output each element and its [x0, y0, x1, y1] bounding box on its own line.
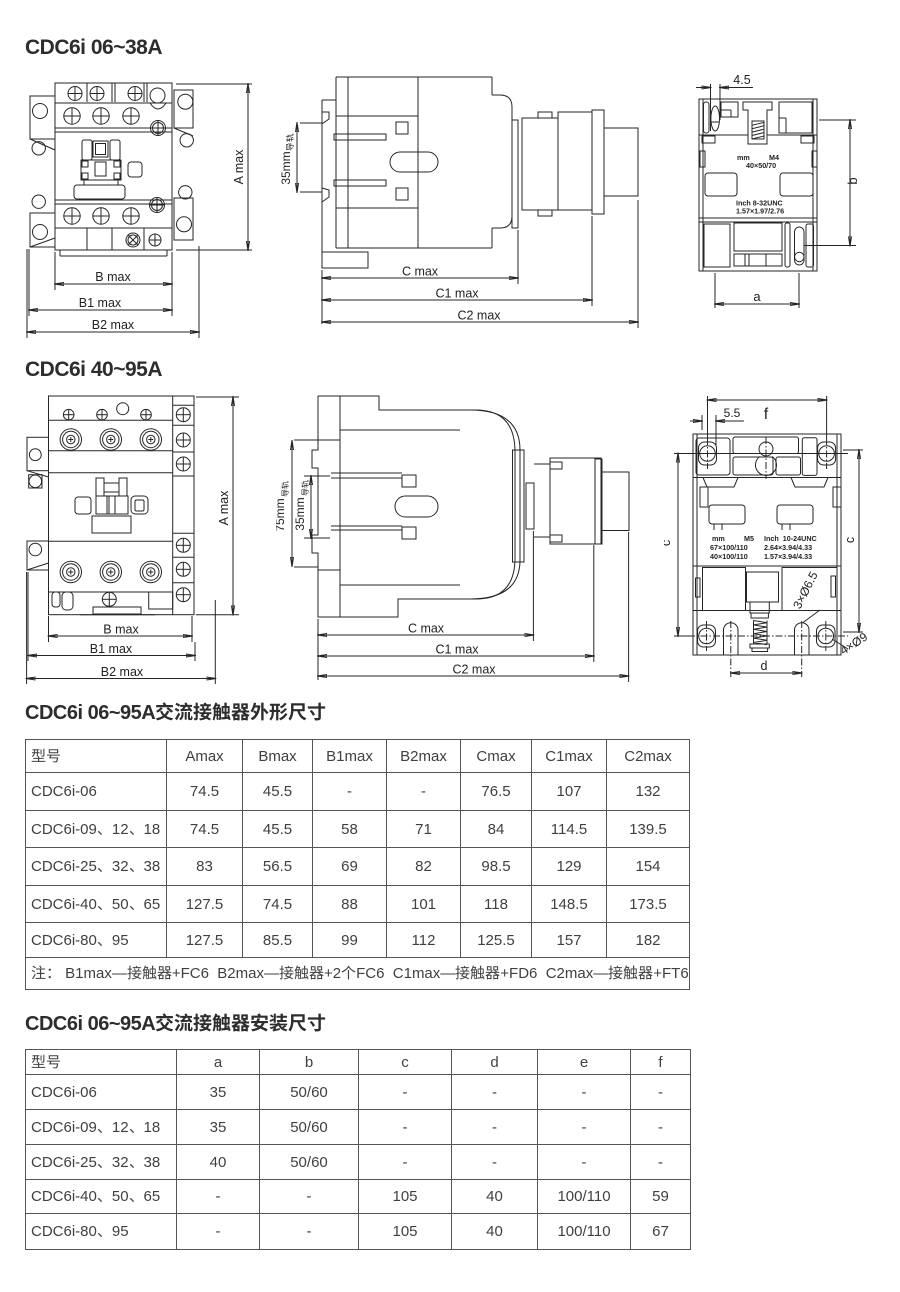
svg-text:C2 max: C2 max: [457, 309, 501, 323]
svg-text:d: d: [761, 659, 768, 673]
svg-text:c: c: [843, 537, 857, 543]
svg-text:f: f: [764, 406, 769, 423]
svg-text:A max: A max: [217, 490, 231, 525]
svg-text:35mm: 35mm: [280, 151, 293, 184]
svg-text:a: a: [753, 289, 761, 304]
svg-text:40×100/110: 40×100/110: [710, 552, 748, 561]
svg-text:Inch 10-24UNC: Inch 10-24UNC: [764, 534, 817, 543]
svg-text:1.57×3.94/4.33: 1.57×3.94/4.33: [764, 552, 812, 561]
svg-text:C2 max: C2 max: [452, 663, 496, 677]
svg-text:4.5: 4.5: [733, 73, 750, 87]
svg-text:B2 max: B2 max: [92, 318, 135, 332]
svg-text:B1 max: B1 max: [79, 296, 122, 310]
svg-text:C1 max: C1 max: [435, 287, 479, 301]
svg-text:2.64×3.94/4.33: 2.64×3.94/4.33: [764, 543, 812, 552]
svg-text:b: b: [845, 177, 860, 184]
svg-text:5.5: 5.5: [724, 406, 741, 420]
svg-text:A max: A max: [232, 149, 246, 184]
svg-text:B max: B max: [103, 623, 139, 637]
svg-text:B2 max: B2 max: [101, 665, 144, 679]
svg-text:c: c: [664, 540, 673, 546]
svg-text:3×Ø6.5: 3×Ø6.5: [790, 569, 821, 611]
svg-text:35mm: 35mm: [293, 497, 307, 530]
svg-text:1.57×1.97/2.76: 1.57×1.97/2.76: [736, 207, 784, 216]
svg-text:40×50/70: 40×50/70: [746, 161, 776, 170]
svg-text:C max: C max: [402, 265, 439, 279]
svg-text:mm: mm: [712, 534, 725, 543]
svg-text:C1 max: C1 max: [435, 643, 479, 657]
svg-text:67×100/110: 67×100/110: [710, 543, 748, 552]
svg-text:B max: B max: [95, 270, 131, 284]
svg-text:C max: C max: [408, 622, 445, 636]
svg-text:B1 max: B1 max: [90, 642, 133, 656]
svg-text:75mm: 75mm: [276, 498, 287, 531]
svg-text:4×Ø9: 4×Ø9: [838, 630, 871, 658]
svg-text:M5: M5: [744, 534, 754, 543]
